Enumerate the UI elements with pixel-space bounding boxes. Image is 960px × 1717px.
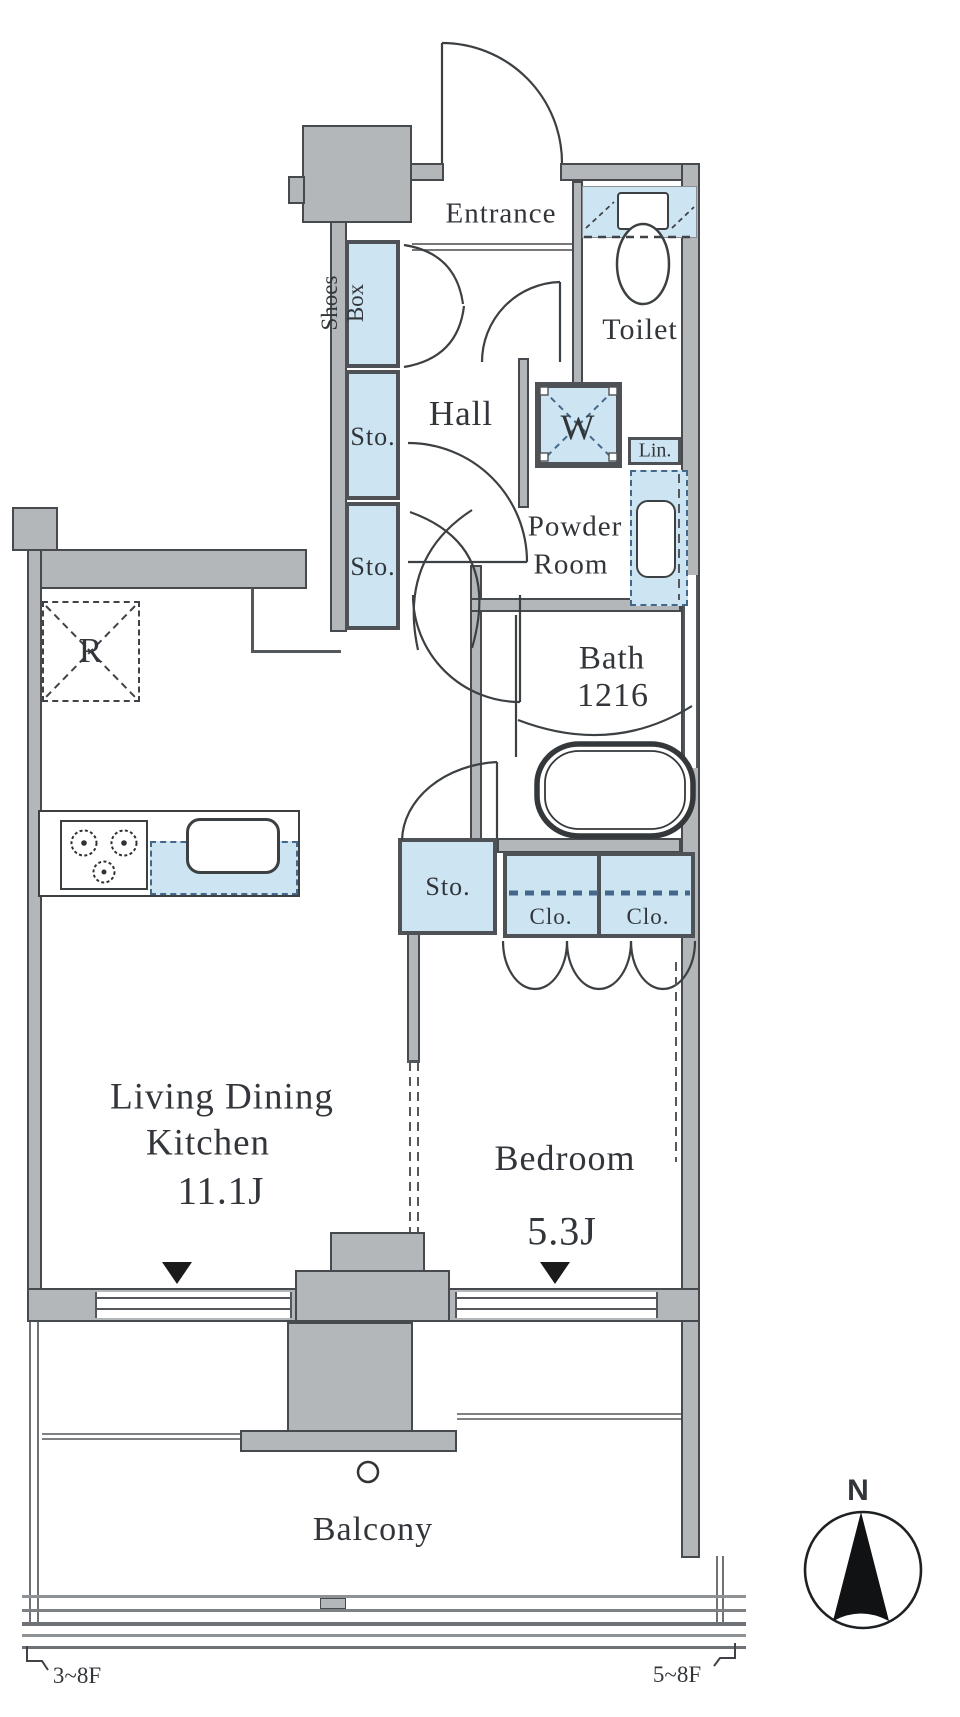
- floor-plan: Entrance Toilet Shoes Box Sto. Sto. Hall…: [0, 0, 960, 1717]
- closet-door-arc2: [567, 941, 631, 989]
- toilet-door-arc: [482, 282, 560, 362]
- balcony-drain-icon: [358, 1462, 378, 1482]
- window-ldk: [95, 1292, 292, 1318]
- label-washer: W: [561, 406, 596, 448]
- window-bedroom-line1: [455, 1297, 658, 1299]
- wall-bath-south: [497, 838, 681, 853]
- bathtub-icon: [537, 744, 693, 836]
- entrance-step-line1: [412, 243, 572, 245]
- railing-line-5: [22, 1646, 746, 1649]
- bathtub-inner-line: [545, 751, 685, 829]
- railing-line-1: [22, 1595, 746, 1598]
- label-sto-hall-upper: Sto.: [350, 422, 395, 452]
- toilet-tank: [617, 192, 669, 230]
- label-shoes-line1: Shoes: [317, 251, 343, 355]
- kitchen-nook-line-v: [251, 588, 254, 652]
- sto-bedroom-door-arc: [402, 762, 497, 840]
- label-balcony: Balcony: [313, 1511, 433, 1549]
- window-bedroom-line2: [455, 1308, 658, 1310]
- balcony-rail-left: [29, 1322, 39, 1622]
- label-sto-bedroom: Sto.: [425, 872, 470, 902]
- wall-pillar-top: [302, 125, 412, 223]
- hall-door-arc-cross1: [410, 512, 479, 648]
- wall-pillar-neck: [330, 1232, 425, 1274]
- balcony-ledge-left-2: [42, 1438, 240, 1440]
- hall-door-arc-cross2: [414, 510, 472, 650]
- label-ldk-line1: Living Dining: [110, 1076, 334, 1119]
- label-entrance: Entrance: [445, 198, 556, 231]
- wall-pillar-tab: [288, 176, 305, 204]
- balcony-ledge-right-1: [457, 1413, 681, 1415]
- compass-icon: [805, 1512, 921, 1628]
- balcony-ledge-right-2: [457, 1418, 681, 1420]
- railing-tick: [320, 1598, 346, 1609]
- floor-bracket-left: [27, 1646, 48, 1670]
- label-powder-line1: Powder: [528, 511, 623, 544]
- wall-north-left: [410, 163, 444, 181]
- wall-west-step: [12, 507, 58, 551]
- balcony-ledge-left-1: [42, 1433, 240, 1435]
- hall-door-arc: [408, 443, 527, 562]
- label-floor-right: 5~8F: [653, 1662, 701, 1688]
- label-shoes-box: Shoes Box: [317, 251, 427, 355]
- label-ldk-line2: Kitchen: [146, 1122, 270, 1165]
- window-bedroom: [455, 1292, 658, 1318]
- label-hall: Hall: [429, 394, 493, 434]
- label-powder-line2: Room: [534, 549, 609, 582]
- wall-hall-powder: [518, 358, 529, 508]
- kitchen-stove: [60, 820, 148, 890]
- label-bedroom-size: 5.3J: [527, 1208, 597, 1255]
- label-shoes-line2: Box: [343, 251, 369, 355]
- railing-line-2: [22, 1609, 746, 1612]
- closet-divider: [597, 852, 601, 938]
- powder-basin-bowl: [636, 500, 676, 578]
- entrance-door-arc: [442, 43, 562, 163]
- wall-ldk-north: [27, 549, 307, 589]
- label-bath-size: 1216: [577, 677, 649, 715]
- kitchen-sink: [186, 818, 280, 874]
- wall-pillar-base: [240, 1430, 457, 1452]
- wall-west: [27, 549, 42, 1322]
- label-clo-left: Clo.: [530, 904, 573, 930]
- label-ldk-size: 11.1J: [178, 1169, 265, 1214]
- railing-line-4: [22, 1634, 746, 1637]
- label-floor-left: 3~8F: [53, 1663, 101, 1689]
- wall-pillar-mid: [295, 1270, 450, 1322]
- window-marker-triangle-bedroom: [540, 1262, 570, 1284]
- wall-partition-ldk-bedroom: [407, 933, 420, 1062]
- label-bedroom: Bedroom: [495, 1137, 636, 1179]
- compass-needle-icon: [833, 1512, 889, 1621]
- label-clo-right: Clo.: [627, 904, 670, 930]
- partition-cap: [407, 1060, 420, 1063]
- closet-door-arc1: [503, 941, 567, 989]
- wall-north-right: [560, 163, 700, 181]
- railing-line-3: [22, 1622, 746, 1626]
- label-sto-hall-lower: Sto.: [350, 552, 395, 582]
- window-marker-triangle-ldk: [162, 1262, 192, 1284]
- window-ldk-line1: [95, 1297, 292, 1299]
- entrance-step-line2: [412, 249, 572, 251]
- label-toilet: Toilet: [602, 313, 678, 347]
- label-linen: Lin.: [639, 440, 672, 463]
- balcony-rail-right-post: [716, 1556, 724, 1622]
- kitchen-nook-line-h: [251, 650, 341, 653]
- wall-pillar-low: [287, 1322, 413, 1432]
- label-bath: Bath: [579, 641, 645, 678]
- window-ldk-line2: [95, 1308, 292, 1310]
- label-compass-north: N: [847, 1474, 869, 1508]
- label-refrigerator: R: [79, 631, 103, 671]
